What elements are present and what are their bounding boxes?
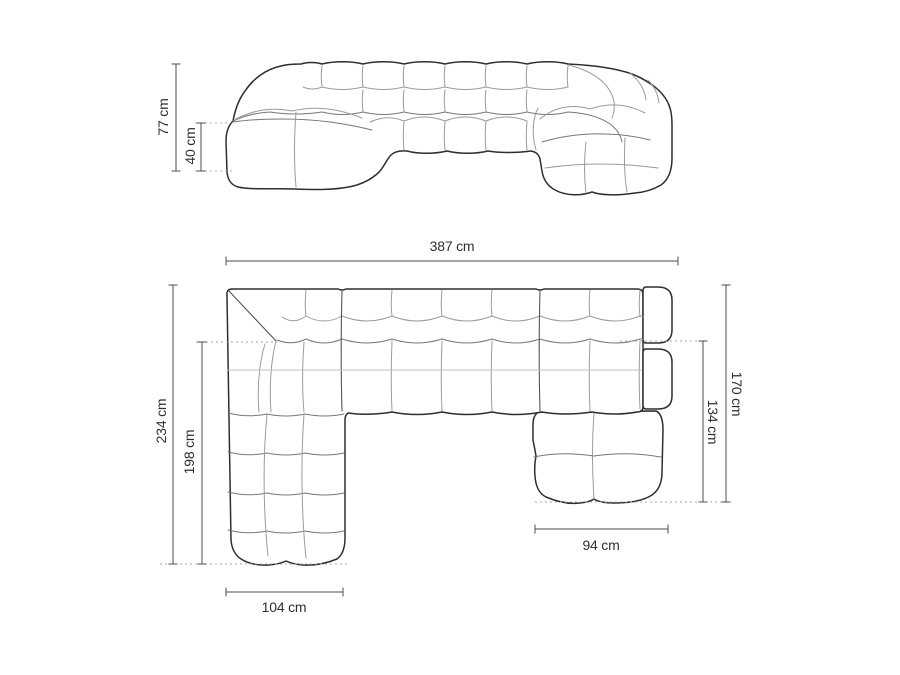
sofa-front-outline <box>226 62 672 195</box>
plan-right-armrest-modules <box>643 287 672 409</box>
dim-line-77 <box>172 64 181 171</box>
dim-label-right-depth-chaise: 134 cm <box>705 400 721 445</box>
dim-label-left-depth-chaise: 198 cm <box>181 430 197 475</box>
dim-line-387 <box>226 257 678 266</box>
dim-label-right-chaise-width: 94 cm <box>582 537 619 553</box>
dim-label-total-width: 387 cm <box>430 238 475 254</box>
plan-right-chaise-outline <box>533 411 663 503</box>
front-dimension-lines <box>172 64 234 171</box>
dimension-diagram-page: 77 cm 40 cm 387 cm 234 cm 198 cm 170 cm … <box>0 0 900 675</box>
dim-label-total-height: 77 cm <box>155 98 171 135</box>
dim-line-234 <box>169 285 178 564</box>
dim-label-seat-height: 40 cm <box>182 127 198 164</box>
dim-label-left-depth-total: 234 cm <box>153 399 169 444</box>
dim-line-94 <box>535 525 668 534</box>
dim-line-104 <box>226 588 343 597</box>
sofa-line-art <box>0 0 900 675</box>
dim-line-198 <box>198 342 207 564</box>
front-elevation-drawing <box>172 62 673 195</box>
dim-label-right-depth-total: 170 cm <box>729 372 745 417</box>
top-plan-drawing <box>160 257 731 597</box>
dim-label-left-chaise-width: 104 cm <box>262 599 307 615</box>
